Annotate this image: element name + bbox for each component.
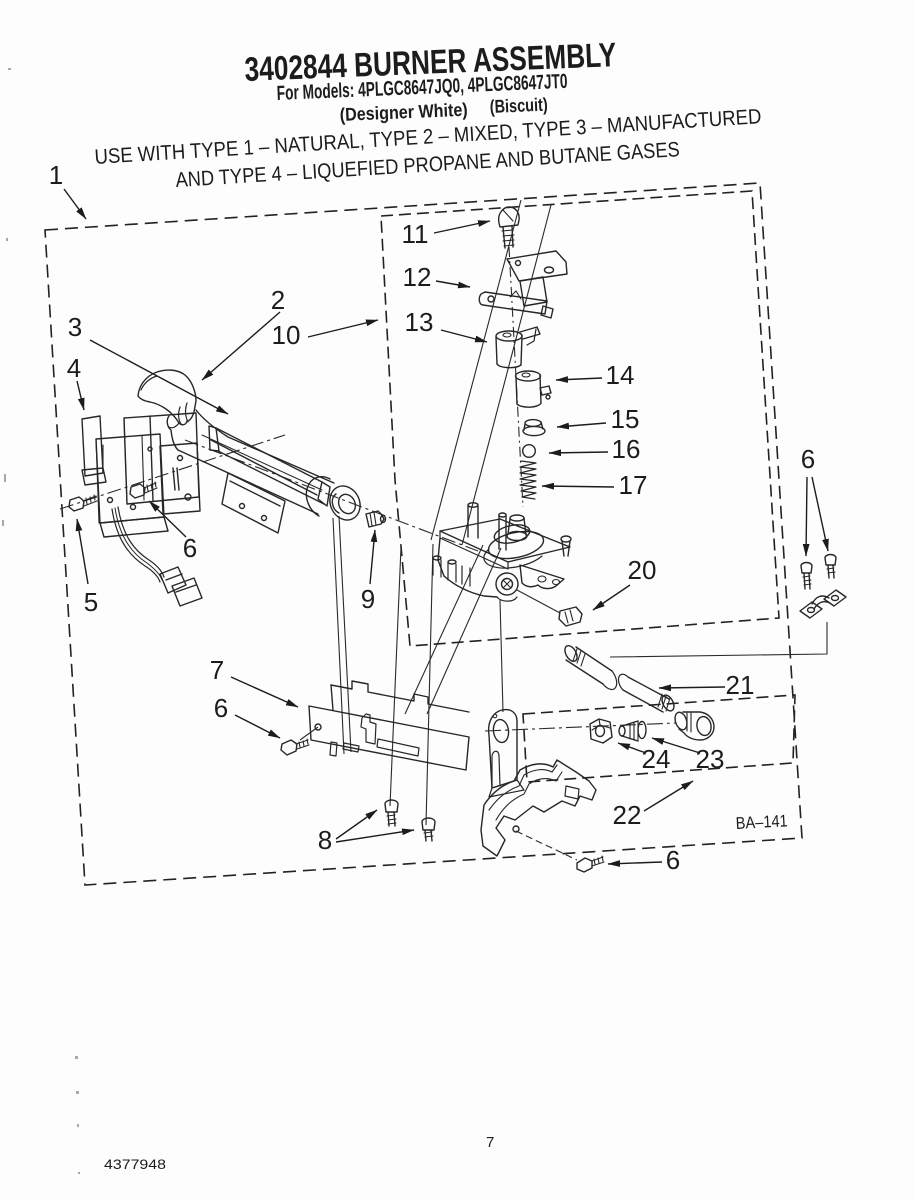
- svg-text:(Biscuit): (Biscuit): [489, 94, 548, 117]
- svg-text:2: 2: [271, 285, 285, 315]
- svg-text:10: 10: [272, 320, 301, 350]
- svg-text:1: 1: [49, 160, 63, 190]
- svg-text:22: 22: [613, 800, 642, 830]
- svg-text:12: 12: [403, 262, 432, 292]
- svg-text:7: 7: [210, 655, 224, 685]
- svg-text:16: 16: [612, 434, 641, 464]
- svg-text:11: 11: [402, 219, 429, 249]
- svg-text:9: 9: [361, 584, 375, 614]
- svg-text:(Designer White): (Designer White): [339, 99, 468, 125]
- svg-text:23: 23: [696, 744, 725, 774]
- svg-text:4377948: 4377948: [104, 1157, 166, 1172]
- svg-text:6: 6: [183, 533, 197, 563]
- svg-text:BA–141: BA–141: [735, 811, 788, 833]
- svg-text:17: 17: [619, 470, 648, 500]
- svg-text:20: 20: [628, 555, 657, 585]
- svg-text:21: 21: [726, 670, 755, 700]
- svg-text:6: 6: [214, 693, 228, 723]
- svg-text:6: 6: [801, 444, 815, 474]
- svg-text:4: 4: [67, 353, 81, 383]
- svg-text:15: 15: [611, 404, 640, 434]
- svg-text:3: 3: [68, 312, 82, 342]
- svg-text:5: 5: [84, 587, 98, 617]
- svg-text:24: 24: [642, 744, 671, 774]
- svg-text:8: 8: [318, 825, 332, 855]
- svg-text:14: 14: [606, 360, 635, 390]
- svg-text:6: 6: [666, 845, 680, 875]
- svg-text:13: 13: [405, 307, 434, 337]
- svg-text:7: 7: [486, 1134, 494, 1151]
